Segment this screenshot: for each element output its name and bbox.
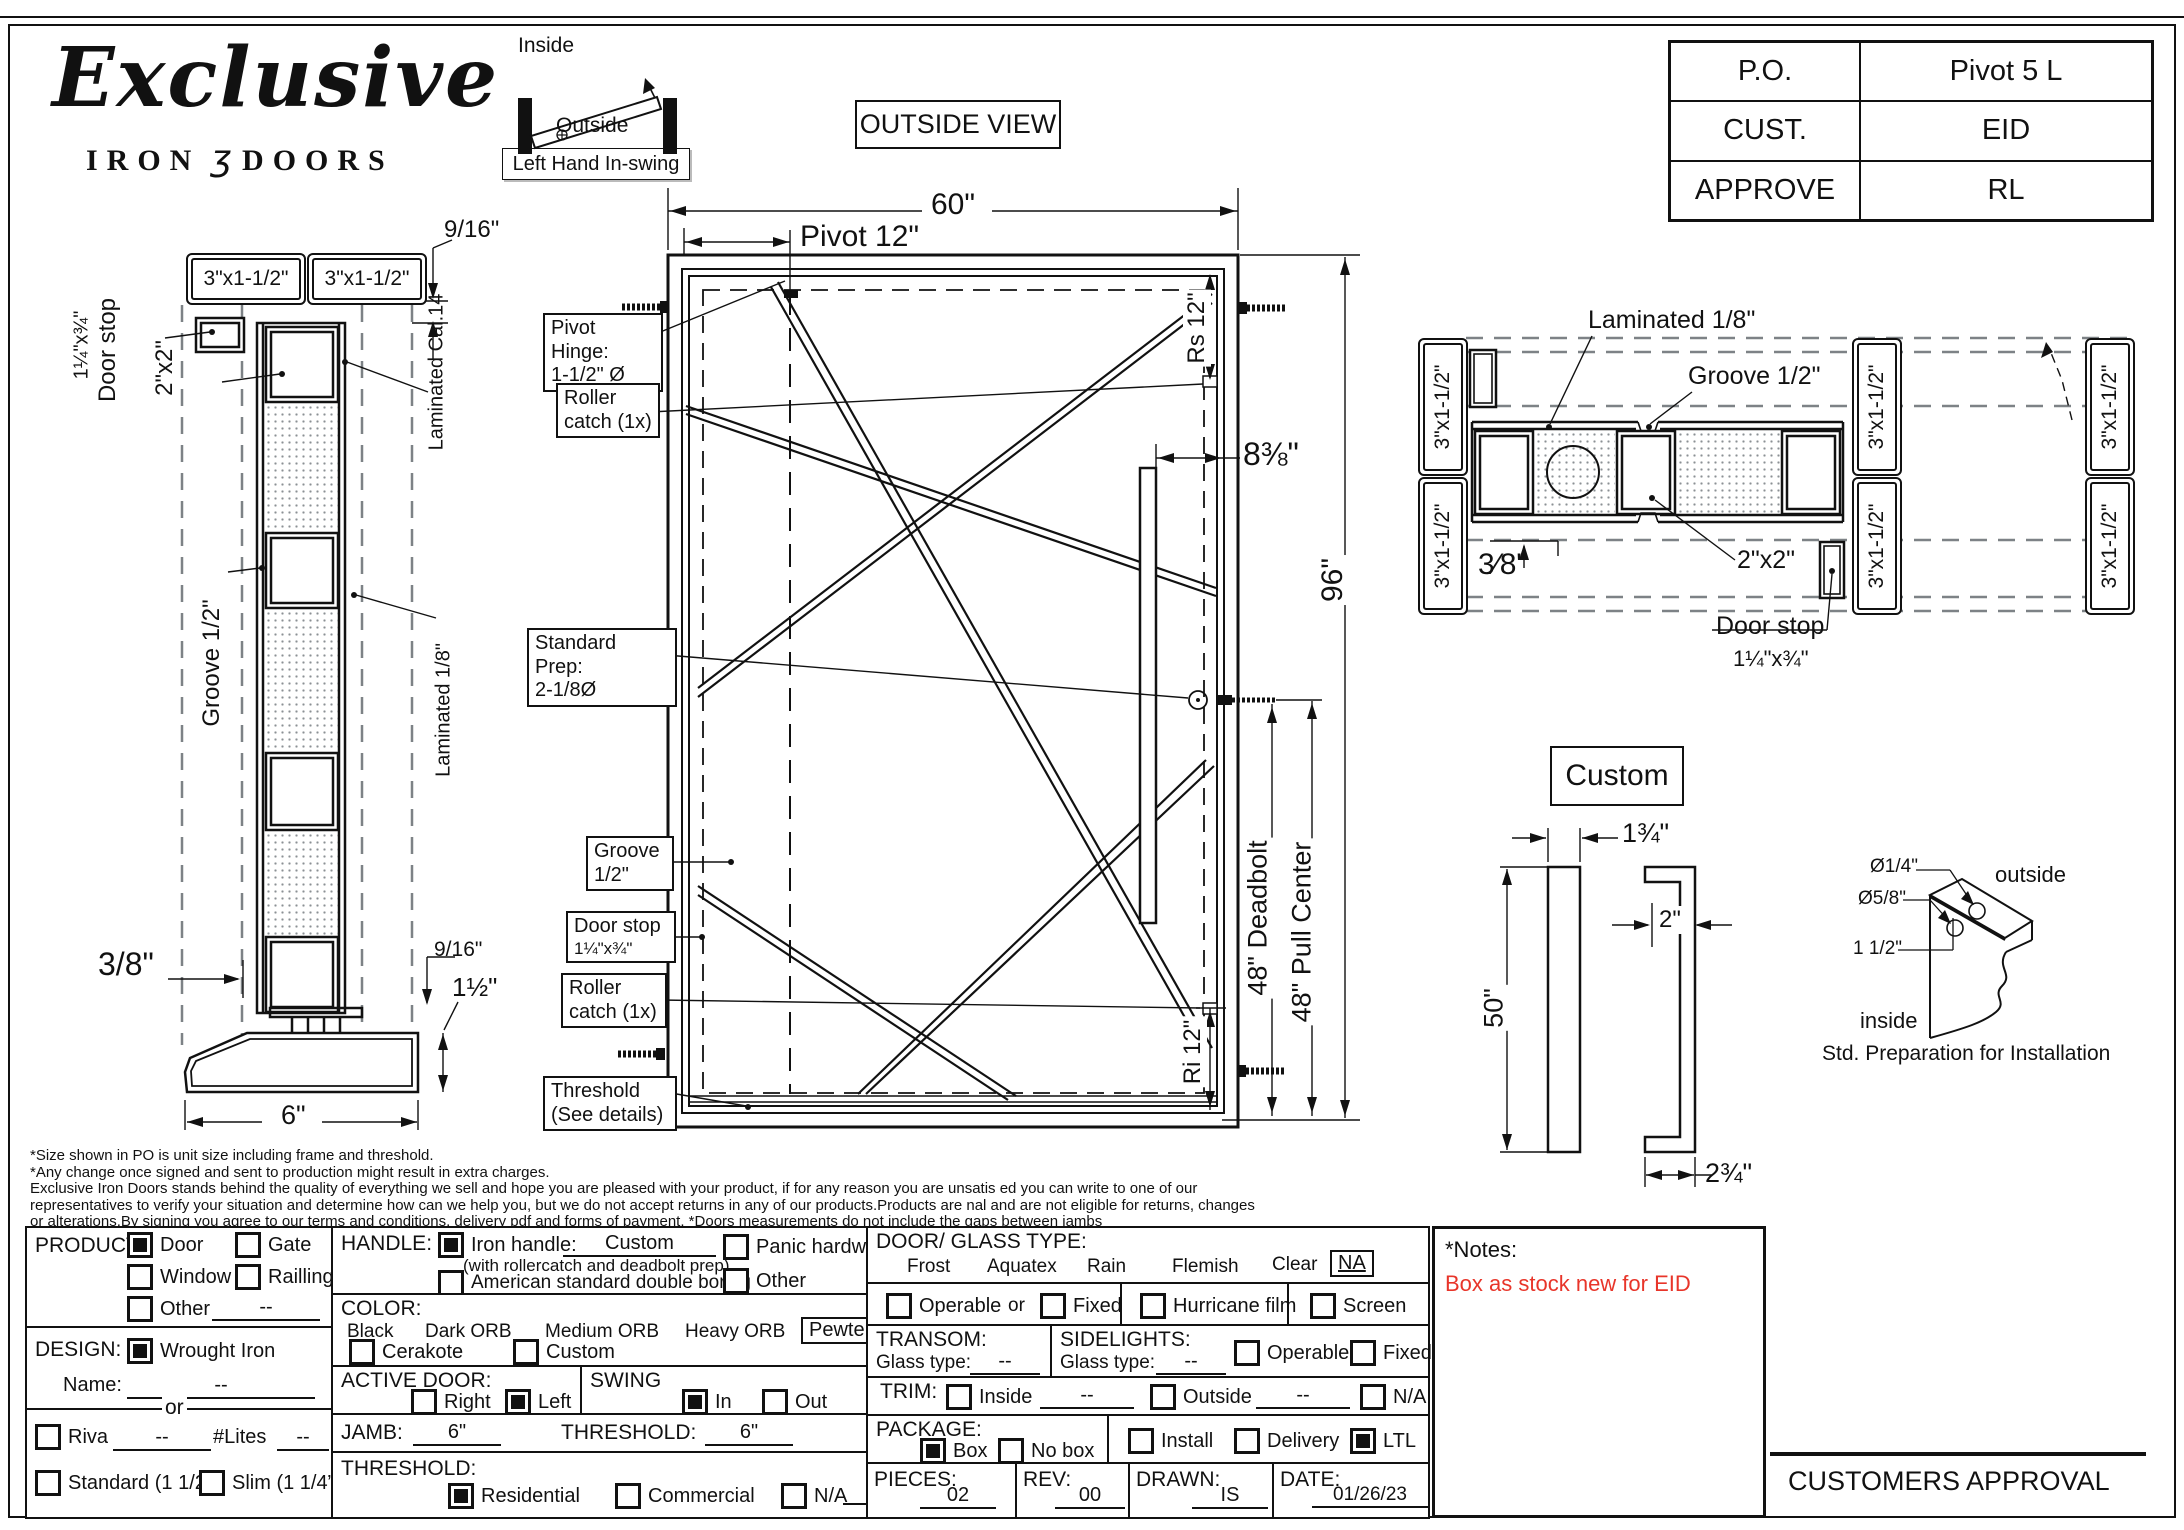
design-title: DESIGN: <box>35 1338 121 1362</box>
side-door-stop-label: Door stop <box>94 298 122 402</box>
checkbox-threshold-na[interactable]: N/A <box>781 1483 847 1509</box>
checkbox-handle-other[interactable]: Other <box>723 1268 806 1294</box>
side-groove-label: Groove 1/2" <box>198 599 226 726</box>
approval-label: CUSTOMERS APPROVAL <box>1788 1466 2110 1497</box>
notes-title: *Notes: <box>1445 1237 1517 1263</box>
color-title: COLOR: <box>341 1297 422 1321</box>
jamb-label: JAMB: <box>341 1421 403 1445</box>
glass-option-flemish[interactable]: Flemish <box>1172 1256 1239 1278</box>
checkbox-swing-in[interactable]: In <box>682 1389 732 1415</box>
checkbox-icon <box>127 1264 153 1290</box>
checkbox-product-railling[interactable]: Railling <box>235 1264 334 1290</box>
po-label: P.O. <box>1670 42 1860 101</box>
checkbox-ship-ltl[interactable]: LTL <box>1350 1428 1416 1454</box>
checkbox-label: Cerakote <box>382 1341 463 1364</box>
handle-dim-width: 1¾" <box>1622 818 1669 849</box>
sidelights-glass-value[interactable]: -- <box>1156 1350 1226 1375</box>
checkbox-label: Slim (1 1/4”) <box>232 1472 341 1495</box>
side-laminated-eighth-label: Laminated 1/8" <box>433 643 456 777</box>
side-dim-916-bottom: 9/16" <box>434 938 482 962</box>
trim-title: TRIM: <box>880 1380 937 1404</box>
cust-value: EID <box>1860 101 2152 160</box>
disclaimer-line: *Any change once signed and sent to prod… <box>30 1165 1420 1182</box>
checkbox-icon <box>1140 1293 1166 1319</box>
checkbox-active-left[interactable]: Left <box>505 1389 571 1415</box>
brand-word-iron: IRON <box>86 144 200 177</box>
checkbox-threshold-commercial[interactable]: Commercial <box>615 1483 755 1509</box>
form-drawn-cell: DRAWN: IS <box>1128 1462 1276 1519</box>
checkbox-icon <box>505 1389 531 1415</box>
brand-logo-sub: IRON ʒ DOORS <box>86 138 394 179</box>
checkbox-label: Inside <box>979 1386 1032 1409</box>
side-jamb-box-right: 3"x1-1/2" <box>307 253 427 305</box>
plan-jamb-label: 3"x1-1/2" <box>2098 365 2122 450</box>
checkbox-label: Out <box>795 1391 827 1414</box>
prep-inside-label: inside <box>1860 1008 1917 1034</box>
side-tube-label: 2"x2" <box>151 340 179 396</box>
plan-jamb-label: 3"x1-1/2" <box>1431 365 1455 450</box>
checkbox-icon <box>438 1232 464 1258</box>
checkbox-icon <box>235 1264 261 1290</box>
design-lites-label: #Lites <box>213 1426 266 1449</box>
checkbox-icon <box>1310 1293 1336 1319</box>
date-value[interactable]: 01/26/23 <box>1312 1484 1428 1508</box>
plan-dim-gap: 3⁄8" <box>1478 548 1527 582</box>
plan-jamb-label: 3"x1-1/2" <box>1431 504 1455 589</box>
checkbox-product-door[interactable]: Door <box>127 1232 203 1258</box>
rev-value[interactable]: 00 <box>1055 1484 1125 1509</box>
side-door-stop-line1: Door stop <box>94 298 122 402</box>
checkbox-label: Install <box>1161 1430 1213 1453</box>
checkbox-label: Railling <box>268 1266 334 1289</box>
checkbox-glass-fixed[interactable]: Fixed <box>1040 1293 1122 1319</box>
checkbox-icon <box>886 1293 912 1319</box>
checkbox-label: No box <box>1031 1440 1094 1463</box>
callout-groove: Groove 1/2" <box>586 836 674 891</box>
checkbox-icon <box>1234 1428 1260 1454</box>
checkbox-label: Custom <box>546 1341 615 1364</box>
plan-jamb-box-5: 3"x1-1/2" <box>2085 338 2135 476</box>
sidelights-glass-label: Glass type: <box>1060 1352 1155 1374</box>
threshold-size-label: THRESHOLD: <box>561 1421 696 1445</box>
checkbox-icon <box>127 1296 153 1322</box>
checkbox-icon <box>920 1438 946 1464</box>
callout-text: Roller <box>569 977 659 1001</box>
checkbox-threshold-residential[interactable]: Residential <box>448 1483 580 1509</box>
form-trim-cell: TRIM: Inside -- Outside -- N/A <box>866 1376 1430 1418</box>
transom-glass-label: Glass type: <box>876 1352 971 1374</box>
checkbox-product-other[interactable]: Other <box>127 1296 210 1322</box>
form-rev-cell: REV: 00 <box>1015 1462 1132 1519</box>
checkbox-icon <box>199 1470 225 1496</box>
checkbox-label: Operable <box>919 1295 1001 1318</box>
handle-dim-length: 50" <box>1479 985 1510 1031</box>
callout-text: 2-1/8Ø <box>535 679 669 703</box>
brand-word-doors: DOORS <box>242 144 394 177</box>
checkbox-label: Gate <box>268 1234 311 1257</box>
checkbox-product-window[interactable]: Window <box>127 1264 231 1290</box>
checkbox-package-nobox[interactable]: No box <box>998 1438 1094 1464</box>
threshold-title: THRESHOLD: <box>341 1457 476 1481</box>
checkbox-label: Screen <box>1343 1295 1406 1318</box>
plan-tube-label: 2"x2" <box>1737 546 1795 575</box>
glass-option-aquatex[interactable]: Aquatex <box>987 1256 1057 1278</box>
checkbox-label: Riva <box>68 1426 108 1449</box>
callout-text: Pivot Hinge: <box>551 317 655 364</box>
callout-roller-top: Roller catch (1x) <box>556 383 660 438</box>
form-handle-cell: HANDLE: Iron handle: Custom (with roller… <box>331 1226 870 1297</box>
form-threshold-cell: THRESHOLD: Residential Commercial N/A <box>331 1451 870 1519</box>
prep-dia-large: Ø5/8" <box>1858 888 1906 910</box>
design-or-label: or <box>162 1396 187 1420</box>
checkbox-active-right[interactable]: Right <box>411 1389 491 1415</box>
glass-option-na-selected[interactable]: NA <box>1330 1250 1374 1277</box>
checkbox-icon <box>682 1389 708 1415</box>
checkbox-label: Other <box>756 1270 806 1293</box>
checkbox-icon <box>946 1384 972 1410</box>
plan-laminated-label: Laminated 1/8" <box>1588 306 1755 335</box>
product-other-value[interactable]: -- <box>212 1296 320 1321</box>
checkbox-label: Right <box>444 1391 491 1414</box>
callout-text: (See details) <box>551 1104 669 1128</box>
checkbox-icon <box>723 1268 749 1294</box>
cust-label: CUST. <box>1670 101 1860 160</box>
checkbox-icon <box>235 1232 261 1258</box>
swing-inside-label: Inside <box>518 34 574 58</box>
checkbox-design-standard[interactable]: Standard (1 1/2”) <box>35 1470 219 1496</box>
glass-option-clear[interactable]: Clear <box>1272 1254 1317 1276</box>
checkbox-sidelights-fixed[interactable]: Fixed <box>1350 1340 1432 1366</box>
checkbox-icon <box>1234 1340 1260 1366</box>
form-pieces-cell: PIECES: 02 <box>866 1462 1019 1519</box>
callout-text: Groove <box>594 840 666 864</box>
divider <box>1050 1326 1052 1378</box>
prep-offset: 1 1/2" <box>1853 938 1902 960</box>
checkbox-sidelights-operable[interactable]: Operable <box>1234 1340 1349 1366</box>
checkbox-label: Other <box>160 1298 210 1321</box>
ov-dim-handle-offset: 8⅜" <box>1243 436 1299 473</box>
checkbox-icon <box>1128 1428 1154 1454</box>
glass-or-label: or <box>1008 1295 1025 1317</box>
design-riva-value[interactable]: -- <box>113 1426 211 1451</box>
checkbox-label: Delivery <box>1267 1430 1339 1453</box>
checkbox-icon <box>513 1339 539 1365</box>
side-jamb-box-left: 3"x1-1/2" <box>186 253 306 305</box>
side-door-stop-size: 1¼"x¾" <box>71 311 94 380</box>
callout-text: Roller <box>564 387 652 411</box>
checkbox-icon <box>615 1483 641 1509</box>
disclaimer-line: *Size shown in PO is unit size including… <box>30 1148 1420 1165</box>
glass-option-frost[interactable]: Frost <box>907 1256 950 1278</box>
checkbox-design-slim[interactable]: Slim (1 1/4”) <box>199 1470 341 1496</box>
threshold-size-value[interactable]: 6" <box>705 1421 793 1446</box>
design-name-label: Name: <box>63 1374 122 1397</box>
plan-jamb-box-3: 3"x1-1/2" <box>1852 338 1902 476</box>
door-shop-drawing-sheet: { "header": { "brand_script": "Exclusive… <box>0 0 2184 1530</box>
trim-inside-value[interactable]: -- <box>1040 1384 1134 1409</box>
callout-text: Standard Prep: <box>535 632 669 679</box>
checkbox-label: Fixed <box>1383 1342 1432 1365</box>
checkbox-label: Commercial <box>648 1485 755 1508</box>
checkbox-label: Window <box>160 1266 231 1289</box>
form-transom-sidelights-cell: TRANSOM: Glass type: -- SIDELIGHTS: Glas… <box>866 1324 1430 1380</box>
handle-dim-total: 2¾" <box>1705 1158 1752 1189</box>
checkbox-label: N/A <box>814 1485 847 1508</box>
callout-text: Door stop <box>574 915 668 939</box>
checkbox-label: Fixed <box>1073 1295 1122 1318</box>
callout-roller-bottom: Roller catch (1x) <box>561 973 667 1028</box>
approve-value: RL <box>1860 161 2152 220</box>
checkbox-swing-out[interactable]: Out <box>762 1389 827 1415</box>
checkbox-label: Standard (1 1/2”) <box>68 1472 219 1495</box>
checkbox-trim-outside[interactable]: Outside <box>1150 1384 1252 1410</box>
side-laminated-cal-label: Laminated Cal.14 <box>426 294 449 451</box>
checkbox-icon <box>723 1234 749 1260</box>
divider <box>1107 1416 1109 1464</box>
design-lites-value[interactable]: -- <box>277 1426 329 1451</box>
ov-dim-pull-center: 48" Pull Center <box>1287 839 1318 1026</box>
checkbox-ship-delivery[interactable]: Delivery <box>1234 1428 1339 1454</box>
glass-title: DOOR/ GLASS TYPE: <box>876 1230 1087 1254</box>
checkbox-label: Box <box>953 1440 987 1463</box>
ov-dim-height: 96" <box>1316 555 1350 605</box>
checkbox-icon <box>998 1438 1024 1464</box>
checkbox-icon <box>1350 1340 1376 1366</box>
po-title-block: P.O. Pivot 5 L CUST. EID APPROVE RL <box>1668 40 2154 222</box>
checkbox-trim-inside[interactable]: Inside <box>946 1384 1032 1410</box>
handle-dim-depth: 2" <box>1656 906 1684 934</box>
checkbox-label: Left <box>538 1391 571 1414</box>
ov-dim-rs: Rs 12" <box>1183 289 1211 366</box>
checkbox-label: Wrought Iron <box>160 1340 275 1363</box>
plan-door-stop-label: Door stop <box>1716 612 1824 641</box>
plan-jamb-box-4: 3"x1-1/2" <box>1852 477 1902 615</box>
view-title-box: OUTSIDE VIEW <box>855 100 1061 149</box>
callout-text: Threshold <box>551 1080 669 1104</box>
callout-text: catch (1x) <box>564 411 652 435</box>
design-name-value[interactable]: -- <box>127 1374 315 1399</box>
swing-tag-box: Left Hand In-swing <box>502 148 690 180</box>
checkbox-trim-na[interactable]: N/A <box>1360 1384 1426 1410</box>
disclaimer-line: representatives to verify your situation… <box>30 1198 1420 1215</box>
checkbox-package-box[interactable]: Box <box>920 1438 987 1464</box>
disclaimer-line: Exclusive Iron Doors stands behind the q… <box>30 1181 1420 1198</box>
form-date-cell: DATE: 01/26/23 <box>1272 1462 1430 1519</box>
side-dim-threshold-height: 1½" <box>452 972 497 1003</box>
handle-title: HANDLE: <box>341 1232 432 1256</box>
transom-title: TRANSOM: <box>876 1328 987 1352</box>
ov-dim-pivot: Pivot 12" <box>800 220 919 254</box>
checkbox-hurricane-film[interactable]: Hurricane film <box>1140 1293 1296 1319</box>
checkbox-color-custom[interactable]: Custom <box>513 1339 615 1365</box>
fleur-glyph-icon: ʒ <box>211 138 232 179</box>
form-product-cell: PRODUCT: Door Gate Window Railling Other… <box>25 1226 335 1330</box>
checkbox-icon <box>781 1483 807 1509</box>
notes-box: *Notes: Box as stock new for EID <box>1432 1226 1766 1518</box>
checkbox-icon <box>1150 1384 1176 1410</box>
checkbox-label: Iron handle: <box>471 1234 577 1257</box>
plan-jamb-box-1: 3"x1-1/2" <box>1418 338 1468 476</box>
approval-signature-line[interactable] <box>1770 1452 2146 1456</box>
checkbox-label: In <box>715 1391 732 1414</box>
checkbox-label: Door <box>160 1234 203 1257</box>
callout-pivot-hinge: Pivot Hinge: 1-1/2" Ø <box>543 313 663 392</box>
checkbox-label: Operable <box>1267 1342 1349 1365</box>
glass-option-rain[interactable]: Rain <box>1087 1256 1126 1278</box>
disclaimer-block: *Size shown in PO is unit size including… <box>30 1148 1420 1231</box>
plan-jamb-label: 3"x1-1/2" <box>1865 504 1889 589</box>
checkbox-icon <box>762 1389 788 1415</box>
form-active-door-cell: ACTIVE DOOR: Right Left <box>331 1365 584 1417</box>
side-dim-gap: 3/8" <box>98 946 154 983</box>
checkbox-icon <box>127 1338 153 1364</box>
approve-label: APPROVE <box>1670 161 1860 220</box>
jamb-value[interactable]: 6" <box>413 1421 501 1446</box>
prep-outside-label: outside <box>1995 862 2066 888</box>
checkbox-label: LTL <box>1383 1430 1416 1453</box>
callout-text: 1¼"x¾" <box>574 939 668 959</box>
plan-groove-label: Groove 1/2" <box>1688 362 1821 391</box>
form-jamb-cell: JAMB: 6" THRESHOLD: 6" <box>331 1413 870 1455</box>
transom-glass-value[interactable]: -- <box>970 1350 1040 1375</box>
form-package-cell: PACKAGE: Box No box Install Delivery LTL <box>866 1414 1430 1466</box>
plan-jamb-box-2: 3"x1-1/2" <box>1418 477 1468 615</box>
side-dim-916-top: 9/16" <box>444 216 499 244</box>
side-dim-width: 6" <box>278 1100 309 1131</box>
checkbox-label: Residential <box>481 1485 580 1508</box>
swing-title: SWING <box>590 1369 661 1393</box>
checkbox-icon <box>1040 1293 1066 1319</box>
color-option-heavy-orb[interactable]: Heavy ORB <box>685 1321 785 1343</box>
plan-jamb-label: 3"x1-1/2" <box>2098 504 2122 589</box>
checkbox-handle-iron[interactable]: Iron handle: <box>438 1232 577 1258</box>
checkbox-ship-install[interactable]: Install <box>1128 1428 1213 1454</box>
callout-standard-prep: Standard Prep: 2-1/8Ø <box>527 628 677 707</box>
callout-text: 1/2" <box>594 864 666 888</box>
checkbox-icon <box>35 1470 61 1496</box>
checkbox-label: Outside <box>1183 1386 1252 1409</box>
form-swing-cell: SWING In Out <box>580 1365 870 1417</box>
plan-door-stop-size: 1¼"x¾" <box>1733 646 1809 672</box>
checkbox-icon <box>448 1483 474 1509</box>
checkbox-icon <box>1360 1384 1386 1410</box>
checkbox-product-gate[interactable]: Gate <box>235 1232 311 1258</box>
po-value: Pivot 5 L <box>1860 42 2152 101</box>
prep-caption: Std. Preparation for Installation <box>1822 1042 2110 1066</box>
pieces-value[interactable]: 02 <box>920 1484 996 1509</box>
sidelights-title: SIDELIGHTS: <box>1060 1328 1191 1352</box>
handle-iron-value[interactable]: Custom <box>563 1232 716 1257</box>
checkbox-label: N/A <box>1393 1386 1426 1409</box>
callout-door-stop: Door stop 1¼"x¾" <box>566 911 676 963</box>
ov-dim-ri: Ri 12" <box>1179 1017 1207 1088</box>
callout-text: catch (1x) <box>569 1001 659 1025</box>
checkbox-glass-operable[interactable]: Operable <box>886 1293 1001 1319</box>
callout-threshold: Threshold (See details) <box>543 1076 677 1131</box>
brand-logo-script: Exclusive <box>52 30 499 126</box>
checkbox-label: American standard double boring <box>471 1272 751 1294</box>
checkbox-design-wrought-iron[interactable]: Wrought Iron <box>127 1338 275 1364</box>
ov-dim-width: 60" <box>928 188 978 222</box>
drawn-value[interactable]: IS <box>1192 1484 1268 1509</box>
checkbox-icon <box>35 1424 61 1450</box>
plan-jamb-label: 3"x1-1/2" <box>1865 365 1889 450</box>
trim-outside-value[interactable]: -- <box>1256 1384 1350 1409</box>
notes-body-text: Box as stock new for EID <box>1445 1271 1691 1297</box>
checkbox-icon <box>127 1232 153 1258</box>
handle-title-box: Custom <box>1550 746 1684 806</box>
checkbox-icon <box>411 1389 437 1415</box>
form-glass-cell: DOOR/ GLASS TYPE: Frost Aquatex Rain Fle… <box>866 1226 1430 1286</box>
form-glass-config-cell: Operable or Fixed Hurricane film Screen <box>866 1282 1430 1328</box>
plan-jamb-box-6: 3"x1-1/2" <box>2085 477 2135 615</box>
checkbox-color-cerakote[interactable]: Cerakote <box>349 1339 463 1365</box>
form-design2-cell: or Riva -- #Lites -- Standard (1 1/2”) S… <box>25 1408 335 1519</box>
checkbox-label: Hurricane film <box>1173 1295 1296 1318</box>
ov-dim-deadbolt: 48" Deadbolt <box>1243 837 1274 998</box>
swing-outside-label: Outside <box>556 114 628 138</box>
handle-detail-lines <box>1500 828 1732 1187</box>
checkbox-screen[interactable]: Screen <box>1310 1293 1406 1319</box>
prep-dia-small: Ø1/4" <box>1870 856 1918 878</box>
form-color-cell: COLOR: Black Dark ORB Medium ORB Heavy O… <box>331 1293 870 1369</box>
checkbox-icon <box>1350 1428 1376 1454</box>
checkbox-icon <box>349 1339 375 1365</box>
checkbox-design-riva[interactable]: Riva <box>35 1424 108 1450</box>
